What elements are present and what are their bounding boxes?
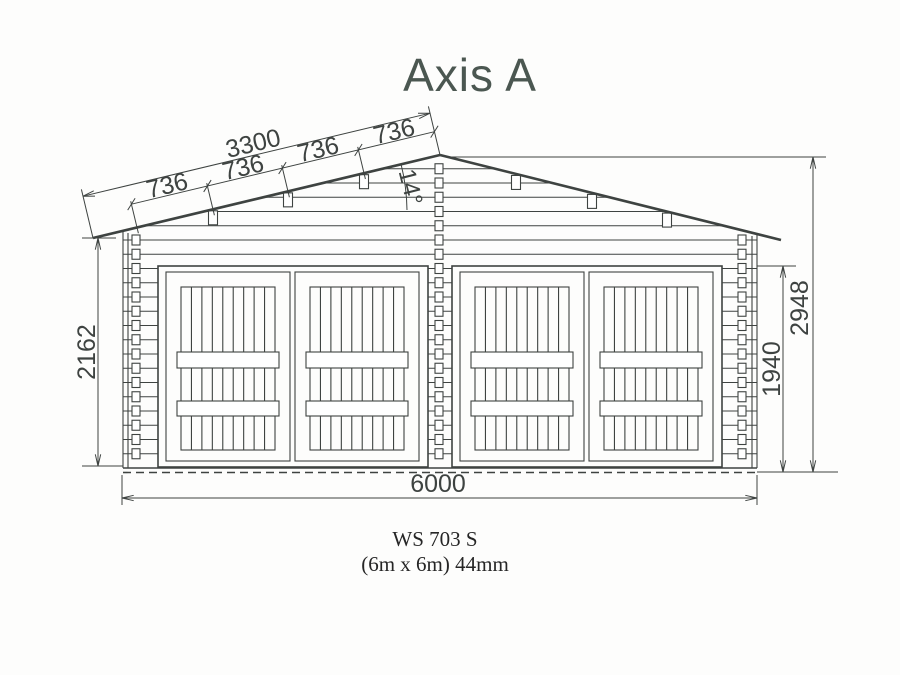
- square-marker: [738, 435, 746, 445]
- model-label: WS 703 S: [392, 527, 477, 551]
- purlin-end: [284, 193, 293, 207]
- square-marker: [132, 321, 140, 331]
- square-marker: [132, 278, 140, 288]
- square-marker: [435, 207, 443, 217]
- square-marker: [435, 335, 443, 345]
- purlin-end: [360, 175, 369, 189]
- dim-label-736-4: 736: [371, 113, 418, 150]
- tick-mark: [431, 126, 438, 138]
- tick-mark: [204, 180, 211, 192]
- square-marker: [435, 178, 443, 188]
- door-rail: [177, 352, 279, 368]
- dim-label-2162: 2162: [73, 324, 101, 380]
- square-marker: [435, 449, 443, 459]
- door-rail: [471, 401, 573, 416]
- door-rail: [306, 352, 408, 368]
- tick-mark: [128, 198, 135, 210]
- square-marker: [738, 264, 746, 274]
- square-marker: [435, 192, 443, 202]
- door-rail: [306, 401, 408, 416]
- square-marker: [738, 378, 746, 388]
- drawing-page: Axis A 2162 6000 1940: [0, 0, 900, 675]
- dim-label-14deg: 14°: [393, 166, 428, 208]
- square-marker: [738, 321, 746, 331]
- square-marker: [435, 249, 443, 259]
- square-marker: [435, 264, 443, 274]
- square-marker: [132, 420, 140, 430]
- tick-mark: [355, 144, 362, 156]
- square-marker: [132, 363, 140, 373]
- square-marker: [132, 406, 140, 416]
- purlin-end: [588, 194, 597, 208]
- dim-total-width: 6000: [122, 470, 757, 505]
- square-marker: [435, 164, 443, 174]
- dim-ridge-height: 2948: [450, 157, 838, 472]
- square-marker: [738, 249, 746, 259]
- dim-left-wall-height: 2162: [73, 238, 123, 466]
- square-marker: [132, 264, 140, 274]
- dimension-arrows: [83, 113, 816, 500]
- square-marker: [435, 349, 443, 359]
- square-marker: [132, 392, 140, 402]
- square-marker: [132, 249, 140, 259]
- dim-label-1940: 1940: [758, 341, 786, 397]
- square-marker: [435, 420, 443, 430]
- square-marker: [435, 363, 443, 373]
- square-marker: [738, 420, 746, 430]
- square-marker: [435, 378, 443, 388]
- dim-purlin-spacing: 736 736 736 736: [131, 113, 435, 233]
- square-marker: [435, 406, 443, 416]
- door-rail: [600, 352, 702, 368]
- dim-label-736-1: 736: [144, 167, 191, 204]
- square-marker: [132, 292, 140, 302]
- square-marker: [738, 278, 746, 288]
- page-title: Axis A: [403, 49, 537, 101]
- purlin-end: [512, 175, 521, 189]
- square-marker: [435, 321, 443, 331]
- square-marker: [435, 221, 443, 231]
- tick-mark: [279, 162, 286, 174]
- square-marker: [435, 435, 443, 445]
- size-label: (6m x 6m) 44mm: [361, 552, 509, 576]
- square-marker: [738, 349, 746, 359]
- door-rail: [600, 401, 702, 416]
- door: [452, 266, 722, 467]
- square-marker: [435, 392, 443, 402]
- square-marker: [132, 335, 140, 345]
- door-rail: [177, 401, 279, 416]
- square-marker: [132, 306, 140, 316]
- square-marker: [132, 349, 140, 359]
- square-marker: [738, 292, 746, 302]
- square-marker: [738, 306, 746, 316]
- square-marker: [132, 435, 140, 445]
- dim-roof-angle: 14°: [393, 164, 428, 210]
- purlin-end: [663, 213, 672, 227]
- square-marker: [738, 235, 746, 245]
- dim-label-6000: 6000: [410, 470, 466, 498]
- square-marker: [132, 449, 140, 459]
- square-marker: [435, 235, 443, 245]
- square-marker: [738, 392, 746, 402]
- square-marker: [435, 292, 443, 302]
- extension-line-peak: [428, 106, 440, 155]
- door-rail: [471, 352, 573, 368]
- square-marker: [738, 335, 746, 345]
- purlin-end: [209, 211, 218, 225]
- square-marker: [435, 306, 443, 316]
- square-marker: [738, 406, 746, 416]
- square-marker: [132, 235, 140, 245]
- square-marker: [132, 378, 140, 388]
- square-marker: [738, 363, 746, 373]
- square-marker: [435, 278, 443, 288]
- elevation-drawing: Axis A 2162 6000 1940: [0, 0, 900, 675]
- square-marker: [738, 449, 746, 459]
- dim-label-736-3: 736: [295, 131, 342, 168]
- dim-label-2948: 2948: [786, 280, 814, 336]
- door: [158, 266, 428, 467]
